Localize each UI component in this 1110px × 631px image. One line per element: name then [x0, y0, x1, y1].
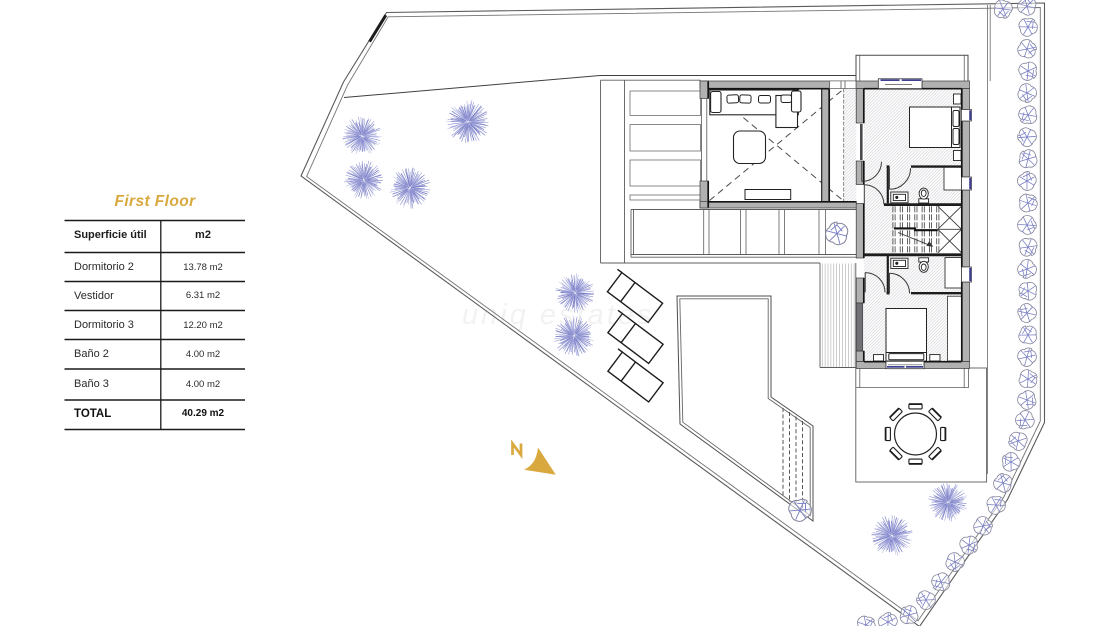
svg-text:uniq estates: uniq estates: [462, 299, 654, 331]
